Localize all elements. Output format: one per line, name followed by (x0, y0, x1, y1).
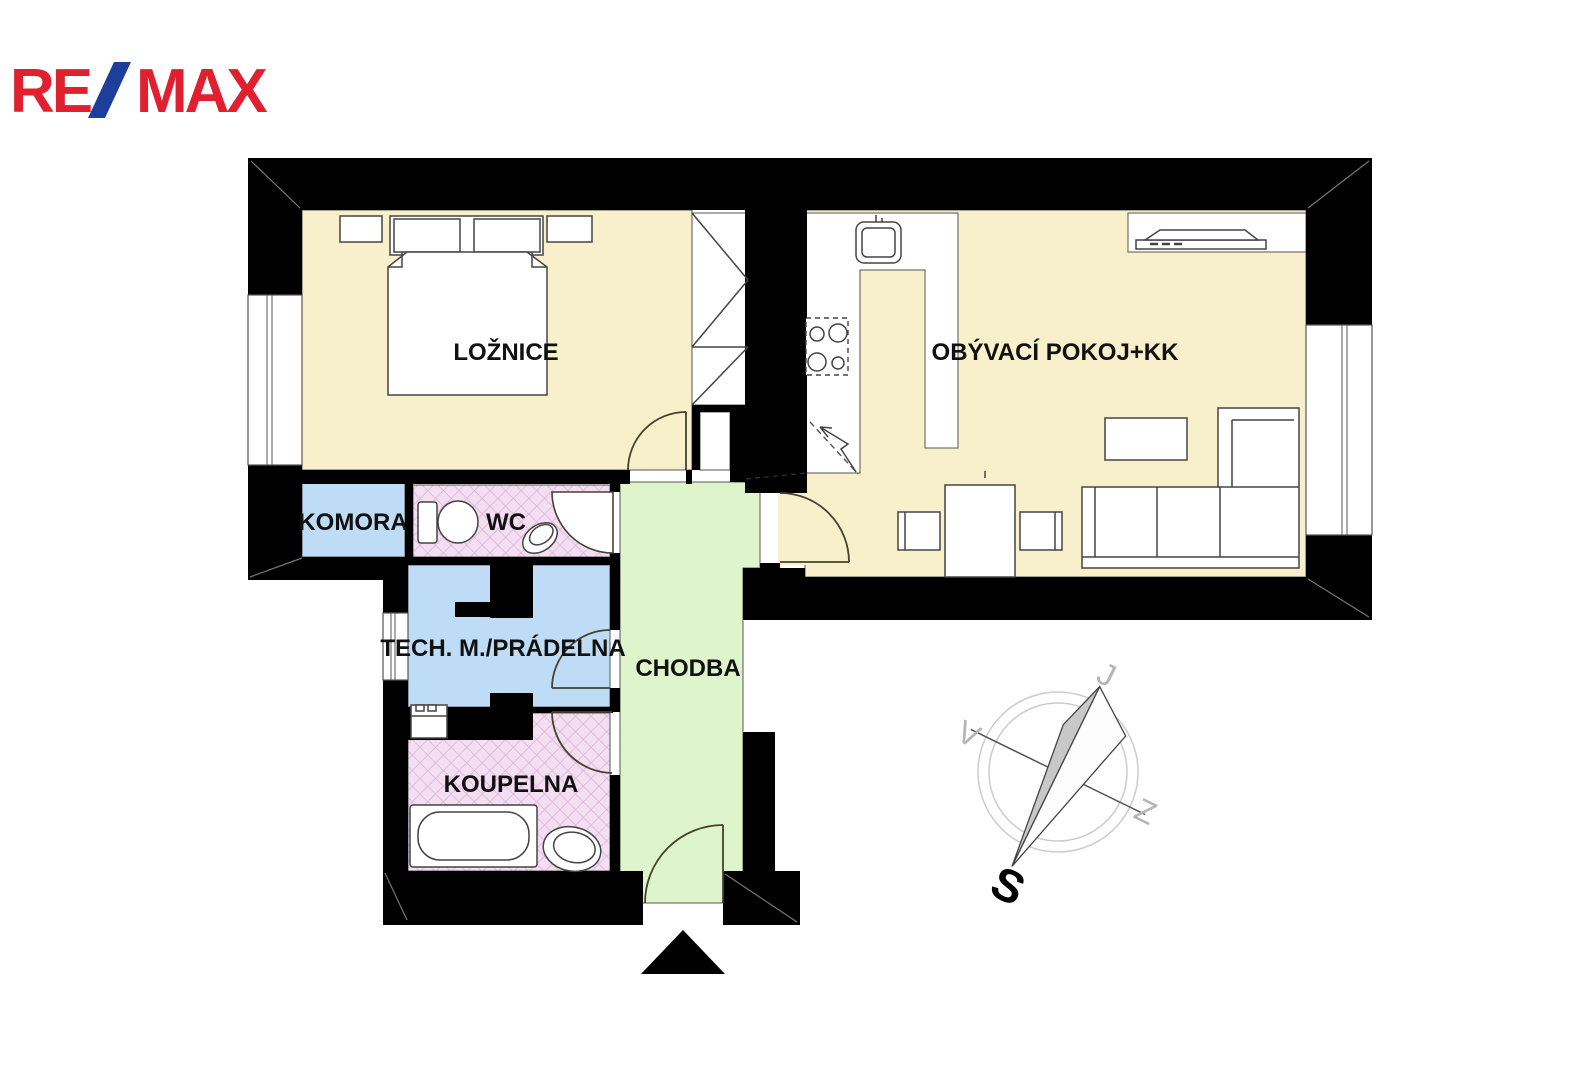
bathroom-label: KOUPELNA (444, 771, 579, 798)
living-window-frame (1306, 325, 1372, 535)
bedroom-label: LOŽNICE (453, 338, 558, 366)
washing-machine (411, 705, 447, 738)
stove-outline (806, 318, 848, 375)
wall-bedroom-door-jamb (686, 470, 692, 484)
dining-table (945, 485, 1015, 577)
bathtub (410, 805, 537, 867)
entrance-arrow (641, 930, 725, 974)
wall-bedroom-living-column (745, 210, 807, 493)
wall-living-bottom (743, 577, 1372, 620)
tv (1136, 230, 1266, 249)
wall-hall-left-d (610, 775, 620, 903)
wall-wc-utility (405, 557, 610, 565)
wall-bottom-left (383, 871, 643, 925)
utility-label: TECH. M./PRÁDELNA (380, 634, 625, 662)
sink-basin (862, 228, 895, 257)
wc-label: WC (486, 509, 526, 536)
bed (388, 216, 547, 395)
coffee-table (1105, 418, 1187, 460)
wall-hall-left-a (610, 482, 620, 492)
living-room-door-recess-floor (778, 491, 807, 565)
nightstand-right (547, 216, 592, 242)
washing-machine-knob-2 (428, 705, 436, 711)
toilet-tank (418, 502, 437, 543)
wall-hall-right (743, 732, 775, 905)
wall-niche-left (692, 412, 700, 470)
remax-logo: RE MAX (10, 57, 267, 126)
bed-pillow-right (474, 219, 540, 252)
bedroom-window (248, 295, 302, 465)
floorplan-canvas: LOŽNICE OBÝVACÍ POKOJ+KK KOMORA WC TECH.… (0, 0, 1583, 1080)
bedroom-niche (700, 412, 730, 470)
wall-top (248, 158, 1372, 210)
wall-wardrobe-strip (692, 405, 748, 412)
wall-utility-partition (490, 565, 533, 618)
compass: J V Z S (895, 611, 1208, 954)
wall-utility-partition-stub (490, 693, 533, 707)
pantry-label: KOMORA (298, 509, 407, 536)
stove (806, 318, 848, 375)
bedroom-window-frame (248, 295, 302, 465)
wall-hall-left-b (610, 553, 620, 630)
kitchen-sink (856, 215, 901, 263)
logo-slash (88, 62, 131, 118)
wall-bedroom-bottom (302, 470, 630, 484)
toilet-bowl (438, 501, 478, 543)
hall-label: CHODBA (635, 655, 740, 682)
nightstand-left (340, 216, 382, 242)
logo-max: MAX (136, 57, 267, 126)
bed-pillow-left (394, 219, 460, 252)
compass-label-s: S (983, 856, 1033, 916)
wall-utility-partition-foot (455, 602, 490, 617)
hall-floor (620, 482, 760, 903)
floorplan-svg: LOŽNICE OBÝVACÍ POKOJ+KK KOMORA WC TECH.… (0, 0, 1583, 1080)
living-room-label: OBÝVACÍ POKOJ+KK (932, 338, 1180, 366)
wall-niche-right (730, 412, 747, 482)
logo-re: RE (10, 57, 91, 126)
washing-machine-knob-1 (416, 705, 424, 711)
toilet (418, 501, 478, 543)
wall-living-door-jamb (760, 563, 780, 590)
compass-label-j: J (1092, 655, 1122, 694)
tv-screen (1145, 230, 1258, 240)
bed-duvet (388, 252, 547, 395)
living-window (1306, 325, 1372, 535)
